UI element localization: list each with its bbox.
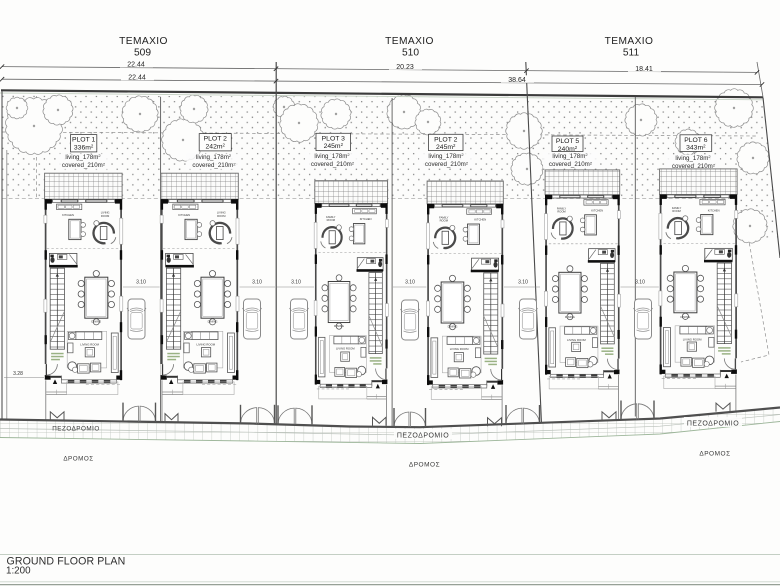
svg-text:336m2: 336m2: [74, 143, 94, 151]
svg-text:living_178m2: living_178m2: [552, 152, 588, 160]
svg-text:covered_210m2: covered_210m2: [311, 160, 355, 168]
svg-text:TEMAXIO: TEMAXIO: [385, 36, 434, 47]
svg-text:living_178m2: living_178m2: [314, 152, 350, 160]
svg-text:ΠΕΖΟΔΡΟΜΙΟ: ΠΕΖΟΔΡΟΜΙΟ: [397, 432, 449, 439]
svg-text:242m2: 242m2: [206, 142, 226, 150]
svg-text:ROOM: ROOM: [440, 219, 449, 223]
svg-text:3.10: 3.10: [635, 280, 645, 286]
svg-text:KITCHEN: KITCHEN: [474, 218, 486, 222]
svg-text:511: 511: [623, 48, 640, 59]
svg-text:DINING: DINING: [208, 320, 218, 324]
svg-text:LIVING ROOM: LIVING ROOM: [80, 342, 99, 346]
svg-text:KITCHEN: KITCHEN: [178, 213, 190, 217]
svg-text:3.10: 3.10: [136, 280, 146, 286]
svg-text:18.41: 18.41: [635, 66, 653, 73]
svg-text:ROOM: ROOM: [672, 209, 681, 213]
svg-text:KITCHEN: KITCHEN: [708, 208, 720, 212]
svg-text:covered_210m2: covered_210m2: [62, 161, 106, 169]
svg-text:living_178m2: living_178m2: [65, 153, 101, 161]
svg-text:living_178m2: living_178m2: [196, 153, 232, 161]
svg-text:ROOM: ROOM: [101, 214, 110, 218]
svg-text:KITCHEN: KITCHEN: [591, 209, 603, 213]
svg-text:ΠΕΖΟΔΡΟΜΙΟ: ΠΕΖΟΔΡΟΜΙΟ: [687, 421, 739, 428]
svg-text:ΔΡΟΜΟΣ: ΔΡΟΜΟΣ: [409, 461, 440, 468]
svg-text:3.10: 3.10: [291, 280, 301, 286]
svg-text:KITCHEN: KITCHEN: [62, 213, 74, 217]
svg-text:DINING: DINING: [681, 315, 691, 319]
svg-text:LIVING ROOM: LIVING ROOM: [567, 338, 586, 342]
svg-text:240m2: 240m2: [558, 145, 578, 153]
svg-text:TEMAXIO: TEMAXIO: [119, 36, 168, 47]
svg-text:509: 509: [134, 48, 151, 59]
svg-text:ROOM: ROOM: [217, 214, 226, 218]
svg-text:KITCHEN: KITCHEN: [360, 217, 372, 221]
svg-text:3.10: 3.10: [405, 280, 415, 286]
svg-text:22.44: 22.44: [128, 74, 146, 81]
svg-text:3.10: 3.10: [252, 280, 262, 286]
svg-text:living_178m2: living_178m2: [675, 154, 711, 162]
svg-text:LIVING ROOM: LIVING ROOM: [196, 342, 215, 346]
svg-text:343m2: 343m2: [686, 144, 706, 152]
svg-text:DINING: DINING: [448, 324, 458, 328]
svg-text:LIVING ROOM: LIVING ROOM: [450, 347, 469, 351]
svg-text:ΔΡΟΜΟΣ: ΔΡΟΜΟΣ: [699, 451, 730, 458]
svg-text:3.10: 3.10: [518, 280, 528, 286]
svg-text:245m2: 245m2: [436, 143, 456, 151]
svg-text:ΔΡΟΜΟΣ: ΔΡΟΜΟΣ: [63, 456, 93, 463]
svg-text:20.23: 20.23: [396, 64, 414, 71]
svg-text:covered_210m2: covered_210m2: [192, 161, 236, 169]
svg-text:covered_210m2: covered_210m2: [549, 160, 593, 168]
svg-text:ΠΕΖΟΔΡΟΜΙΟ: ΠΕΖΟΔΡΟΜΙΟ: [52, 426, 100, 433]
svg-text:covered_210m2: covered_210m2: [425, 160, 469, 168]
svg-text:TEMAXIO: TEMAXIO: [605, 36, 654, 47]
svg-text:living_178m2: living_178m2: [428, 152, 464, 160]
svg-text:22.44: 22.44: [127, 62, 145, 69]
svg-text:ROOM: ROOM: [557, 210, 566, 214]
svg-text:38.64: 38.64: [508, 77, 526, 84]
svg-text:DINING: DINING: [334, 324, 344, 328]
svg-text:DINING: DINING: [91, 320, 101, 324]
svg-text:LIVING ROOM: LIVING ROOM: [683, 338, 702, 342]
svg-text:ROOM: ROOM: [327, 218, 336, 222]
svg-text:510: 510: [402, 48, 419, 59]
svg-text:3.28: 3.28: [13, 371, 23, 377]
svg-text:245m2: 245m2: [324, 142, 344, 150]
svg-text:1:200: 1:200: [6, 566, 31, 577]
svg-text:LIVING ROOM: LIVING ROOM: [336, 347, 355, 351]
svg-text:DINING: DINING: [565, 315, 575, 319]
